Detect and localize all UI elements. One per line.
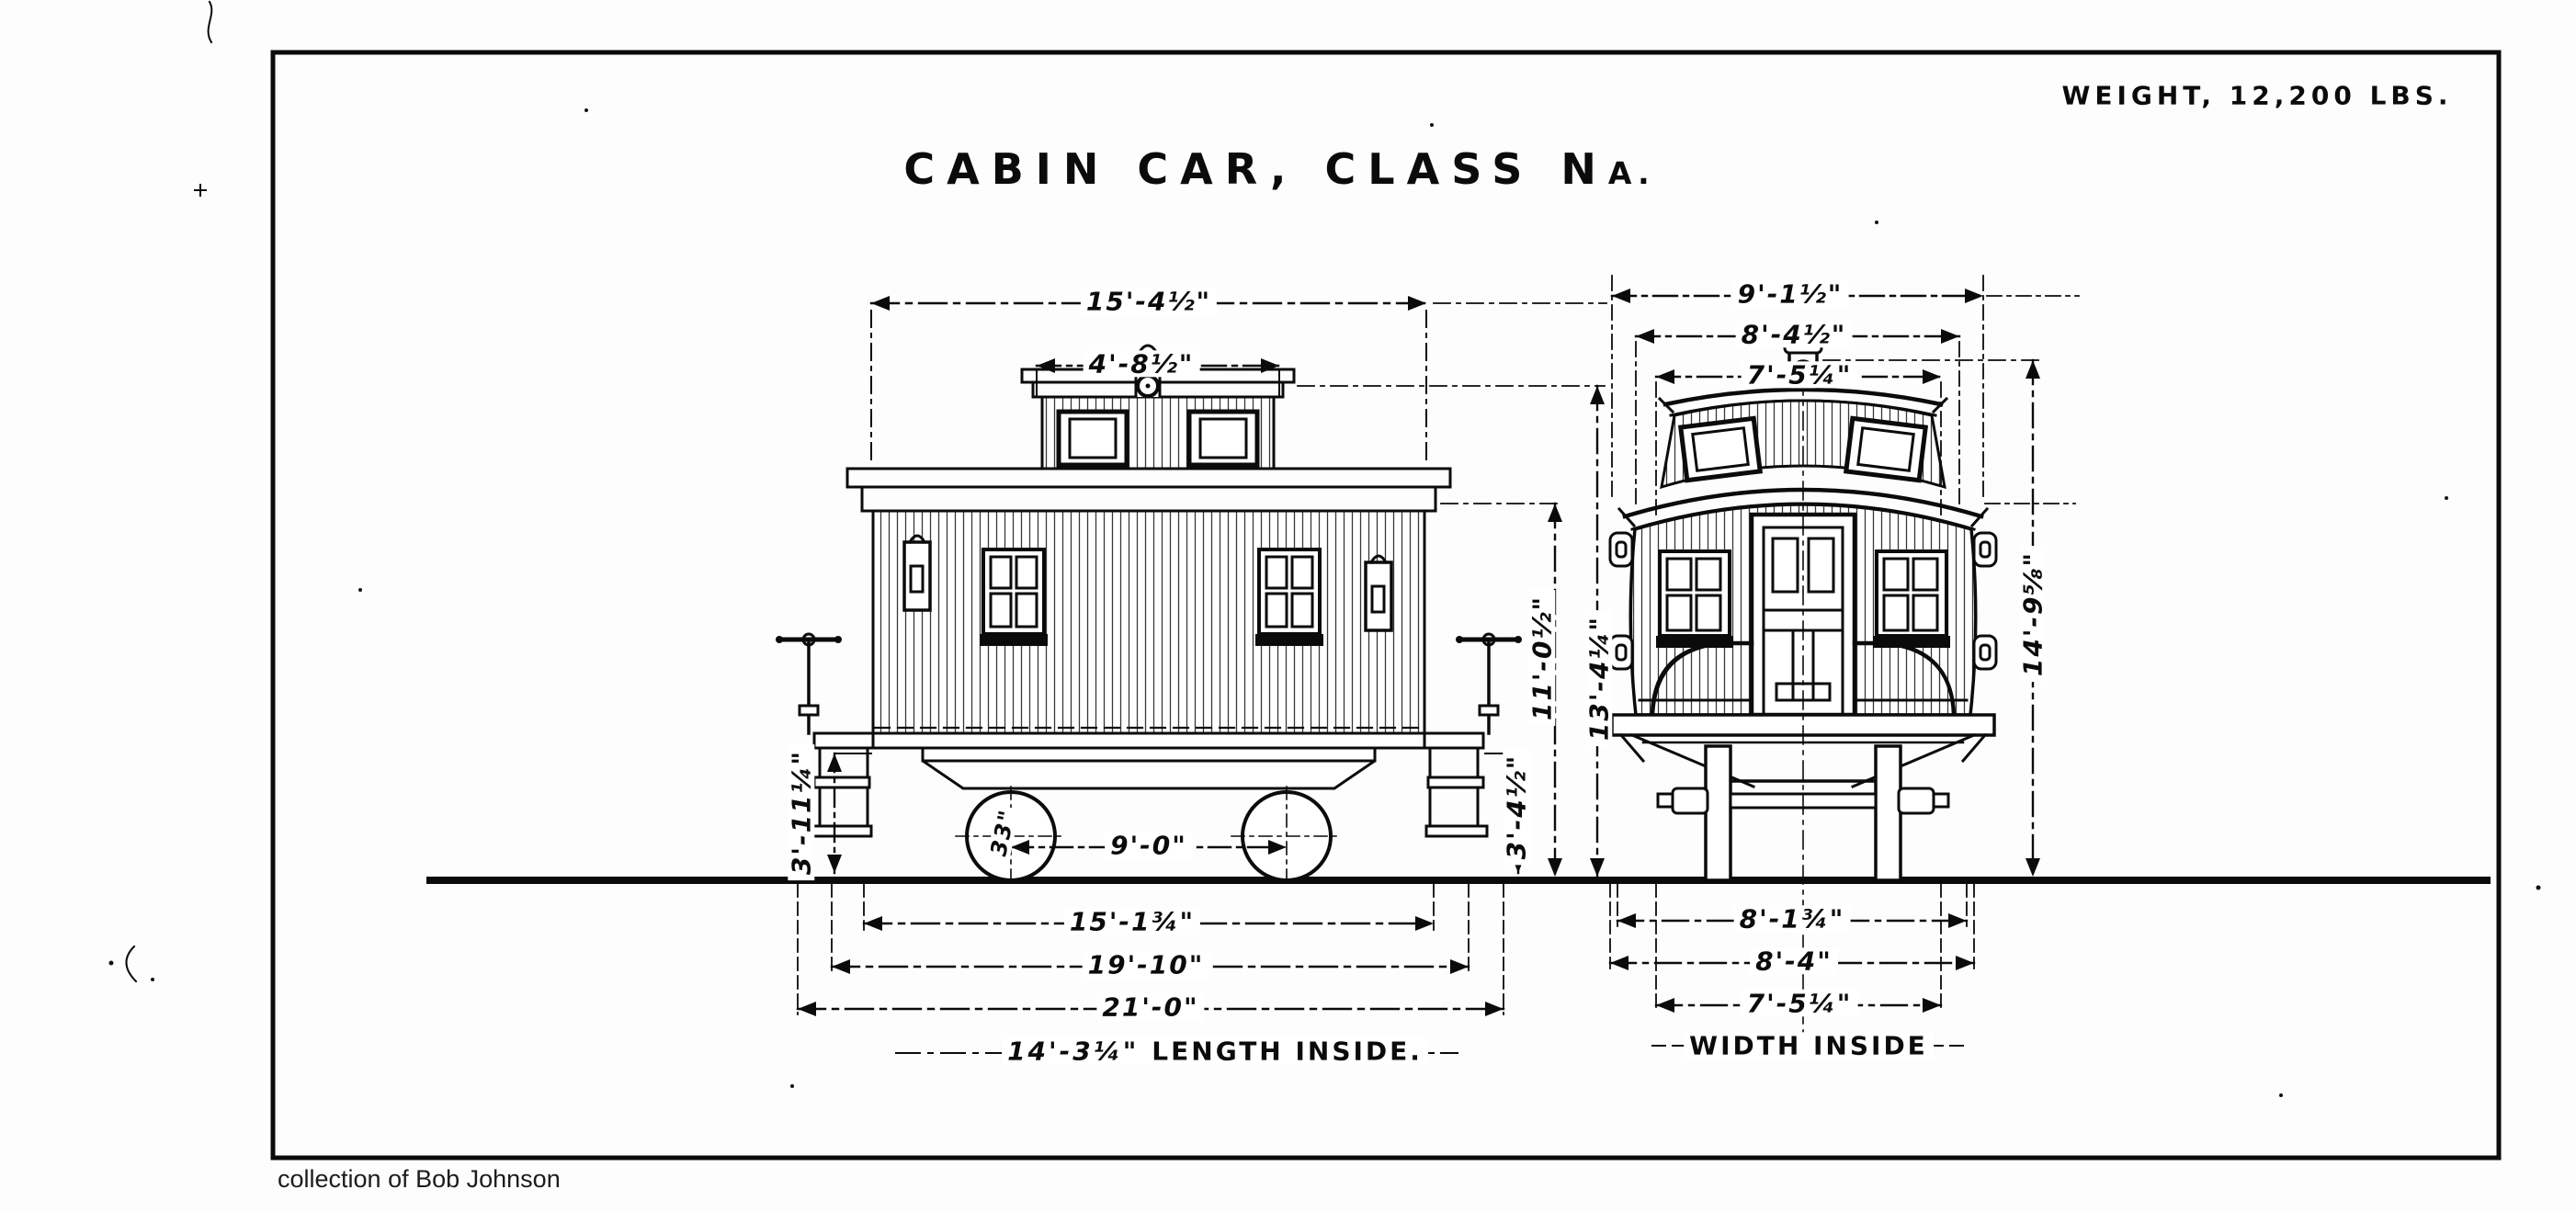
dim-side-cupola-height: 13'-4¼" xyxy=(1585,610,1612,746)
side-elevation-art xyxy=(776,345,1522,888)
scanned-drawing-page: CABIN CAR, CLASS NA. WEIGHT, 12,200 LBS.… xyxy=(0,0,2576,1212)
dim-end-overall-height: 14'-9⅝" xyxy=(2019,546,2046,682)
dim-end-cupola-top-width: 7'-5¼" xyxy=(1742,361,1858,388)
dim-side-frame-length: 15'-1¾" xyxy=(1064,908,1200,934)
dim-side-wheelbase: 9'-0" xyxy=(1105,832,1193,858)
dim-side-eaves-height: 11'-0½" xyxy=(1528,590,1555,726)
dim-side-overall-length: 21'-0" xyxy=(1096,993,1204,1020)
dim-side-step-height: 3'-4½" xyxy=(1503,749,1529,866)
dim-side-over-platforms: 19'-10" xyxy=(1083,951,1210,978)
dim-side-left-height: 3'-11¼" xyxy=(788,744,814,880)
dim-length-inside: 14'-3¼"LENGTH INSIDE. xyxy=(1002,1037,1428,1064)
length-inside-value: 14'-3¼" xyxy=(1007,1036,1139,1066)
dim-end-width-inside-value: 7'-5¼" xyxy=(1742,990,1858,1016)
dim-end-over-sill: 8'-1¾" xyxy=(1734,905,1851,932)
drawing-title: CABIN CAR, CLASS NA. xyxy=(903,144,1654,194)
length-inside-label: LENGTH INSIDE. xyxy=(1152,1036,1423,1066)
dim-end-over-roof: 9'-1½" xyxy=(1732,280,1849,307)
dim-side-cupola-length: 4'-8½" xyxy=(1084,350,1200,377)
weight-note: WEIGHT, 12,200 LBS. xyxy=(2061,81,2452,111)
dim-end-over-eaves: 8'-4½" xyxy=(1736,321,1853,347)
title-main: CABIN CAR, CLASS N xyxy=(903,144,1608,194)
collection-credit: collection of Bob Johnson xyxy=(278,1165,561,1194)
title-class-letter: A. xyxy=(1608,155,1655,191)
dim-side-roof-length: 15'-4½" xyxy=(1081,288,1217,314)
dim-end-width-inside-label: WIDTH INSIDE xyxy=(1684,1032,1934,1059)
dim-end-body-width: 8'-4" xyxy=(1750,947,1838,974)
